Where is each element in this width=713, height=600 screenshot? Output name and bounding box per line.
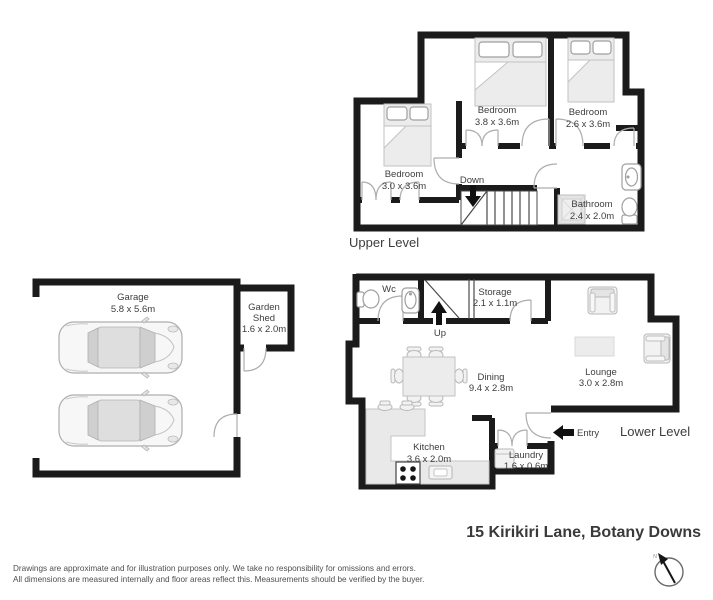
stove	[396, 462, 420, 484]
bathroom-dims: 2.4 x 2.0m	[570, 211, 614, 222]
kitchen-sink	[429, 466, 452, 479]
car-top	[59, 317, 182, 378]
bedroom-right-dims: 2.6 x 3.6m	[566, 119, 610, 130]
entry-arrow-icon	[553, 425, 574, 440]
stairs-down	[461, 185, 537, 225]
compass-north-label: N	[653, 554, 657, 560]
bathroom-sink	[622, 164, 641, 190]
dining-table	[391, 347, 467, 406]
armchair-top	[588, 287, 617, 314]
storage-dims: 2.1 x 1.1m	[473, 298, 517, 309]
wc-label: Wc	[382, 284, 396, 295]
wc-toilet	[357, 290, 379, 308]
lounge-dims: 3.0 x 2.8m	[579, 378, 623, 389]
property-address: 15 Kirikiri Lane, Botany Downs	[466, 524, 701, 541]
disclaimer-line-1: Drawings are approximate and for illustr…	[13, 564, 416, 573]
stairs-up-label: Up	[434, 328, 446, 339]
floorplan-page: Bedroom 3.8 x 3.6m Bedroom 2.6 x 3.6m Be…	[0, 0, 713, 600]
compass-icon: N	[653, 553, 683, 586]
garden-shed-dims: 1.6 x 2.0m	[242, 324, 286, 335]
laundry-label: Laundry	[509, 450, 544, 461]
bed-middle	[475, 38, 546, 106]
entry-label: Entry	[577, 428, 599, 439]
garage-dims: 5.8 x 5.6m	[111, 304, 155, 315]
armchair-right	[644, 334, 670, 363]
bedroom-mid-dims: 3.8 x 3.6m	[475, 117, 519, 128]
stairs-down-label: Down	[460, 175, 484, 186]
garage-label: Garage	[117, 292, 149, 303]
bedroom-mid-label: Bedroom	[478, 105, 517, 116]
bedroom-left-dims: 3.0 x 3.6m	[382, 181, 426, 192]
lounge-rug	[575, 337, 614, 356]
bathroom-toilet	[622, 198, 637, 224]
storage-label: Storage	[478, 287, 511, 298]
bedroom-right-label: Bedroom	[569, 107, 608, 118]
up-arrow-icon	[431, 301, 447, 325]
car-bottom	[59, 390, 182, 451]
garage-plan: Garage 5.8 x 5.6m Garden Shed 1.6 x 2.0m	[36, 282, 291, 474]
garden-shed-label-1: Garden	[248, 302, 280, 313]
upper-level-plan: Bedroom 3.8 x 3.6m Bedroom 2.6 x 3.6m Be…	[349, 32, 641, 250]
disclaimer-line-2: All dimensions are measured internally a…	[13, 575, 424, 584]
floorplan-drawing: Bedroom 3.8 x 3.6m Bedroom 2.6 x 3.6m Be…	[0, 0, 713, 600]
bedroom-left-label: Bedroom	[385, 169, 424, 180]
wc-sink	[402, 288, 419, 313]
kitchen-dims: 3.6 x 2.0m	[407, 454, 451, 465]
garden-shed-label-2: Shed	[253, 313, 275, 324]
lounge-label: Lounge	[585, 367, 617, 378]
kitchen-label: Kitchen	[413, 442, 445, 453]
lower-level-plan: Wc Storage 2.1 x 1.1m Up Dining 9.4 x 2.…	[349, 274, 690, 486]
lower-level-title: Lower Level	[620, 424, 690, 439]
bathroom-label: Bathroom	[571, 199, 612, 210]
upper-level-title: Upper Level	[349, 235, 419, 250]
dining-label: Dining	[478, 372, 505, 383]
bed-right	[568, 38, 614, 102]
dining-dims: 9.4 x 2.8m	[469, 383, 513, 394]
laundry-dims: 1.6 x 0.6m	[504, 461, 548, 472]
bed-left	[384, 104, 431, 166]
